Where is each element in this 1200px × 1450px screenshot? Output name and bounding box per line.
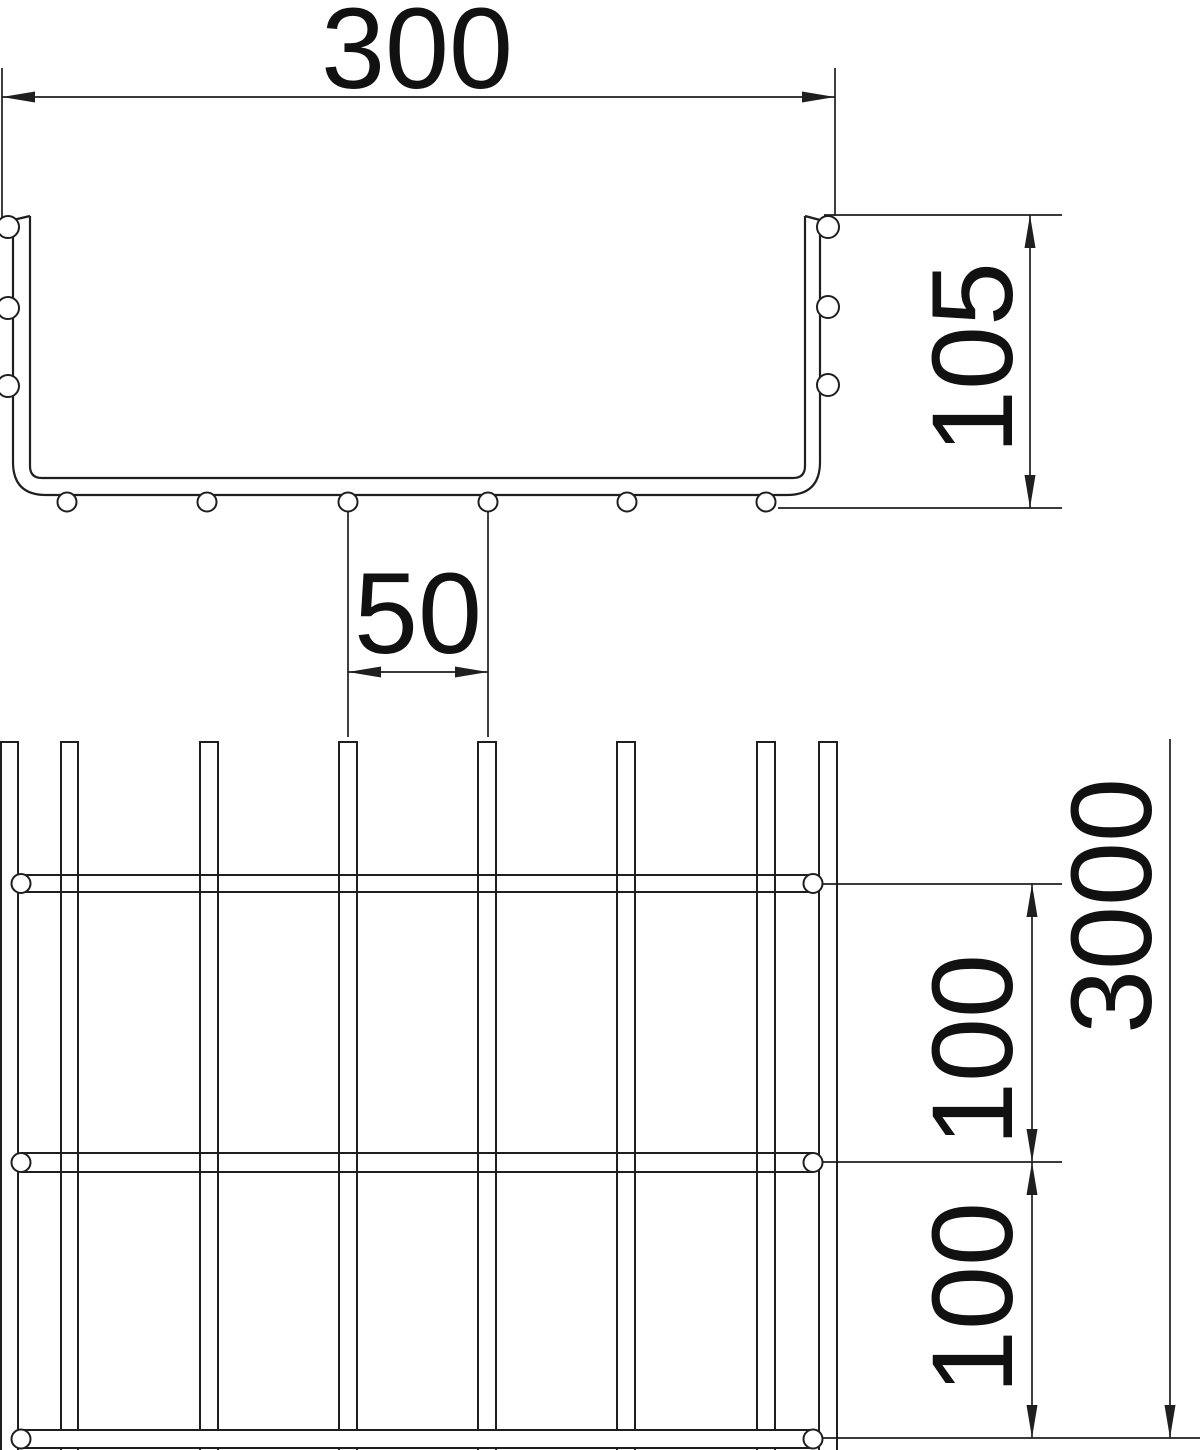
wire-circle [0,216,19,238]
dim-height-label: 105 [909,262,1037,454]
cross-section-wire-ends [0,216,839,512]
wire-circle [757,493,776,512]
dim-wire-spacing-label: 50 [354,550,482,678]
arrowhead-down-icon [1165,1405,1176,1438]
wire-circle [339,493,358,512]
wire-end-circle [804,1430,823,1449]
wire-circle [0,375,19,397]
transverse-wire-2 [12,1153,823,1172]
wire-bar [478,742,496,1450]
dim-width-label: 300 [321,0,513,113]
wire-bar [339,742,357,1450]
dimension-pitch-lower: 100 [822,1162,1200,1438]
arrowhead-up-icon [1025,215,1036,248]
wire-circle [198,493,217,512]
wire-end-circle [804,874,823,893]
drawing-svg: 300 105 50 [0,0,1200,1450]
cable-tray-technical-drawing: 300 105 50 [0,0,1200,1450]
wire-end-circle [12,874,31,893]
tray-outer-contour [13,220,820,495]
wire-circle [817,374,839,396]
dim-pitch-upper-label: 100 [909,954,1037,1146]
wire-circle [618,493,637,512]
wire-circle [479,493,498,512]
wire-bar [61,742,78,1450]
arrowhead-right-icon [802,92,835,103]
dim-pitch-lower-label: 100 [909,1202,1037,1394]
dimension-wire-spacing: 50 [348,511,488,737]
wire-bar [757,742,775,1450]
wire-end-circle [804,1153,823,1172]
wire-bar [617,742,635,1450]
wire-circle [817,216,839,238]
wire-bar [819,742,837,1450]
cross-section-view: 300 105 50 [0,0,1062,737]
wire-end-circle [12,1153,31,1172]
wire-circle [0,297,19,319]
arrowhead-up-icon [1027,884,1038,917]
tray-inner-contour [30,216,805,478]
transverse-wire-3 [12,1430,823,1449]
arrowhead-down-icon [1027,1405,1038,1438]
plan-view: 100 100 3000 [1,739,1200,1450]
wire-end-circle [12,1430,31,1449]
arrowhead-down-icon [1025,475,1036,508]
wire-circle [817,296,839,318]
wire-circle [58,493,77,512]
dimension-length: 3000 [1048,739,1176,1438]
dim-length-label: 3000 [1048,778,1176,1034]
wire-bar [200,742,218,1450]
dimension-width: 300 [2,0,835,220]
arrowhead-up-icon [1027,1162,1038,1195]
longitudinal-wires [1,742,837,1450]
wire-bar [1,742,18,1450]
dimension-pitch-upper: 100 [822,884,1062,1162]
transverse-wire-1 [12,874,823,893]
arrowhead-left-icon [2,92,35,103]
tray-rim-caps [13,216,820,220]
